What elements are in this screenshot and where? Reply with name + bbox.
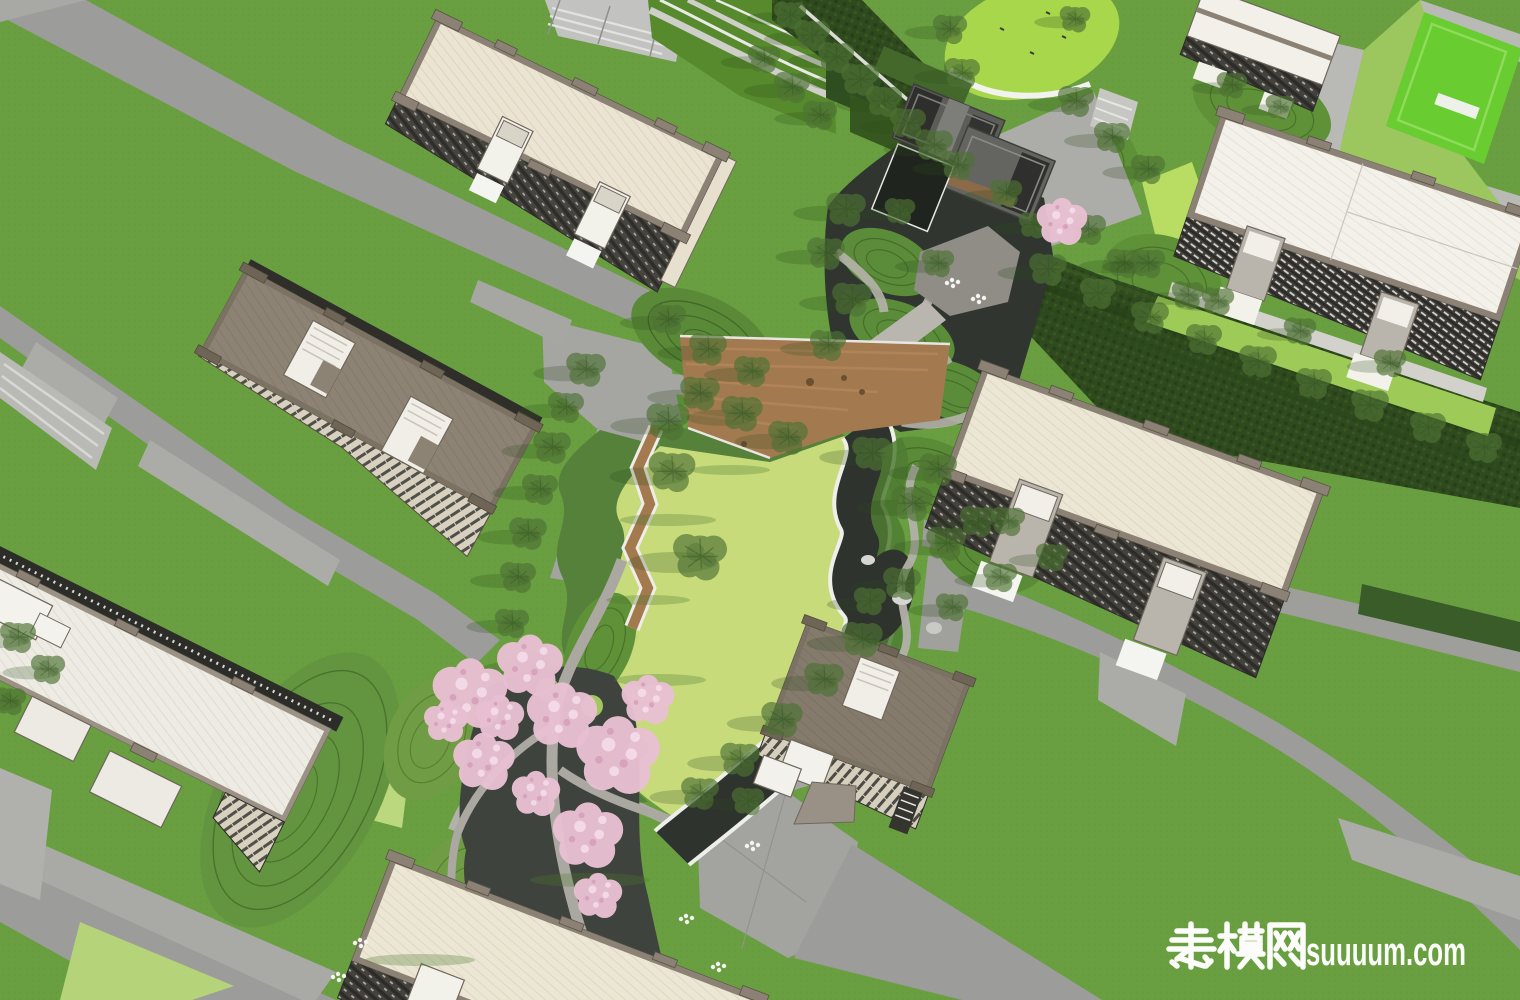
- svg-text:suuuum.com: suuuum.com: [1306, 930, 1466, 974]
